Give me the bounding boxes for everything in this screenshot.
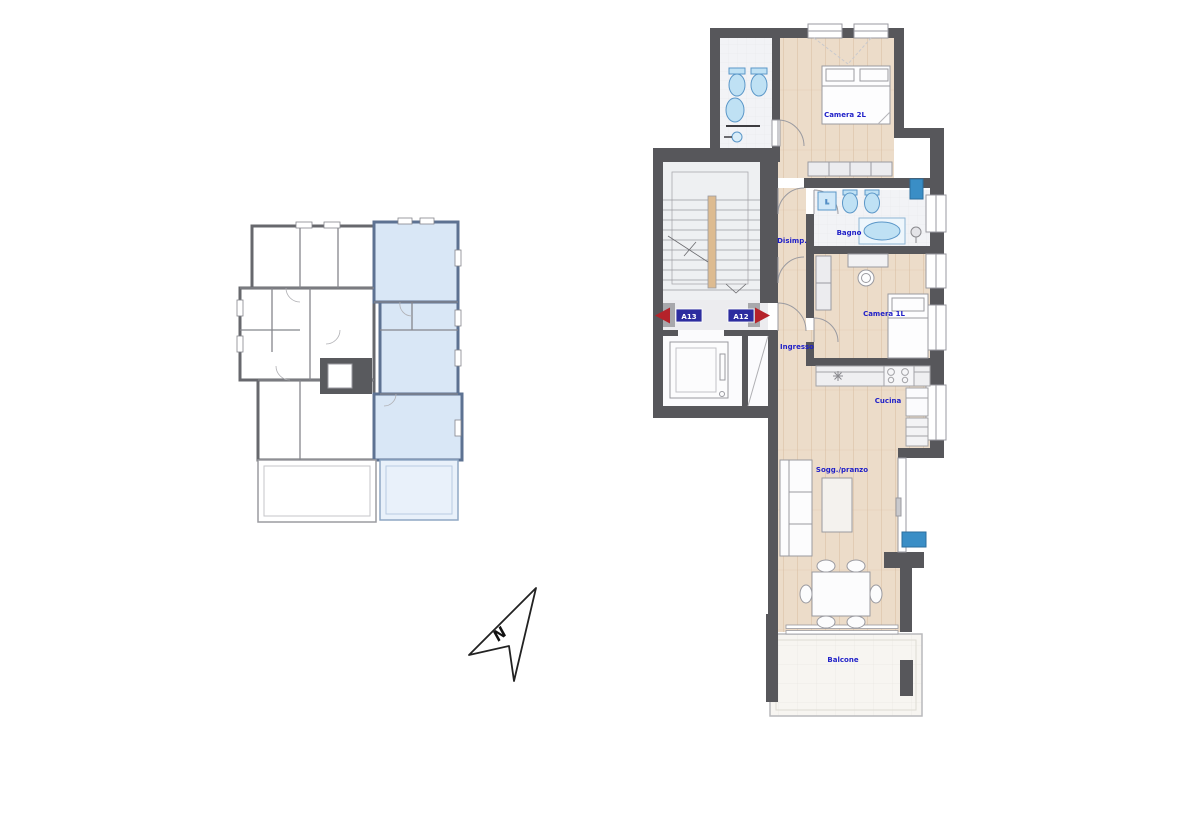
key-plan-highlighted-balcony <box>380 460 458 520</box>
label-cucina: Cucina <box>875 397 902 405</box>
bidet-icon <box>865 193 880 213</box>
label-camera-1l: Camera 1L <box>863 310 905 318</box>
floor-plan-drawing: N <box>0 0 1200 821</box>
north-arrow: N <box>469 588 536 681</box>
shower-icon <box>732 132 742 142</box>
elevator-door-gap <box>678 330 724 336</box>
key-plan-highlighted-unit <box>374 222 462 460</box>
chair-icon <box>817 616 835 628</box>
fridge <box>906 388 928 416</box>
main-plan: A13 A12 <box>653 24 946 716</box>
label-soggiorno: Sogg./pranzo <box>816 466 868 474</box>
tall-unit <box>906 418 928 446</box>
window-handle <box>896 498 901 516</box>
key-plan-neighbour-unit <box>240 226 374 460</box>
floor-plan-page: N <box>0 0 1200 821</box>
chair-icon <box>847 616 865 628</box>
coffee-table <box>822 478 852 532</box>
label-balcone: Balcone <box>827 656 858 664</box>
chair-icon <box>817 560 835 572</box>
tech-duct <box>902 532 926 547</box>
chair-icon <box>870 585 882 603</box>
toilet-icon <box>843 193 858 213</box>
dresser <box>848 254 888 267</box>
chair-icon <box>847 560 865 572</box>
sink-icon <box>833 371 843 381</box>
apartment-entry-gap <box>768 303 778 330</box>
label-disimpegno: Disimp. <box>777 237 807 245</box>
shower-head-icon <box>911 227 921 237</box>
chair-icon <box>800 585 812 603</box>
bidet-icon <box>751 74 767 96</box>
unit-tag-left-label: A13 <box>681 313 696 321</box>
washing-machine-label: L <box>825 199 829 206</box>
label-bagno: Bagno <box>837 229 862 237</box>
sofa <box>780 460 812 556</box>
tech-duct <box>910 179 923 199</box>
key-plan <box>237 218 462 522</box>
washbasin-icon <box>726 98 744 122</box>
toilet-icon <box>729 74 745 96</box>
key-plan-core <box>320 358 372 394</box>
unit-tag-right-label: A12 <box>733 313 748 321</box>
stove <box>884 366 914 386</box>
label-ingresso: Ingresso <box>780 343 814 351</box>
key-plan-neighbour-balcony <box>258 460 376 522</box>
label-camera-2l: Camera 2L <box>824 111 866 119</box>
dining-table <box>812 572 870 616</box>
